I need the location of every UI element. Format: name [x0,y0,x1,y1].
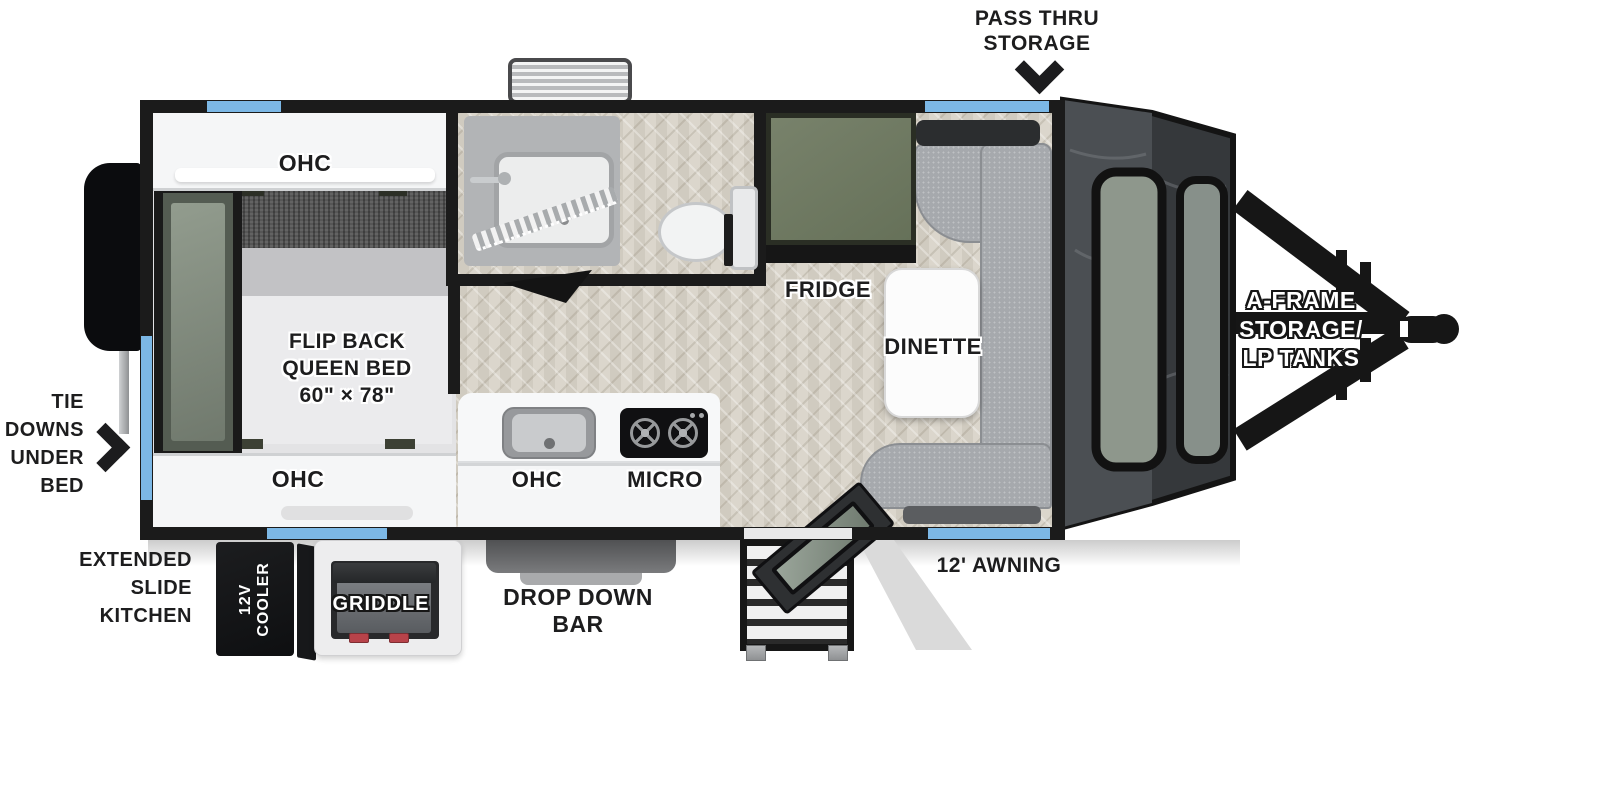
extended-slide-line1: EXTENDED [30,546,192,574]
drop-down-bar-label: DROP DOWN BAR [478,584,678,638]
griddle-label: GRIDDLE [318,592,444,616]
ohc-bed-top-label: OHC [230,150,380,178]
extended-slide-kitchen-label: EXTENDED SLIDE KITCHEN [30,546,192,630]
drop-down-bar [486,539,676,573]
extended-slide-line3: KITCHEN [30,602,192,630]
tie-downs-line4: BED [0,472,84,500]
pass-thru-line1: PASS THRU [927,6,1147,31]
step-foot [828,645,848,661]
bed-label: FLIP BACK QUEEN BED 60" × 78" [240,328,454,409]
tie-down-bar [119,350,129,434]
tie-downs-label: TIE DOWNS UNDER BED [0,388,84,500]
drop-down-bar-line2: BAR [478,611,678,638]
tie-downs-line3: UNDER [0,444,84,472]
pass-thru-strip [925,101,1049,112]
micro-label: MICRO [606,467,724,493]
bed-label-line3: 60" × 78" [240,382,454,409]
a-frame-storage-label: A-FRAME STORAGE/ LP TANKS [1212,286,1390,373]
entry-door-opening [744,528,852,539]
a-frame-line1: A-FRAME [1212,286,1390,315]
cooler-12v: 12V COOLER [216,542,294,656]
cooler-label: 12V COOLER [237,562,274,636]
bed-label-line1: FLIP BACK [240,328,454,355]
window-strip [267,528,387,539]
window-strip [141,336,152,500]
roof-vent [508,58,632,104]
cooler-label-line1: 12V [237,562,255,636]
tie-downs-line2: DOWNS [0,416,84,444]
extended-slide-line2: SLIDE [30,574,192,602]
awning-label: 12' AWNING [899,553,1099,578]
step-foot [746,645,766,661]
griddle-knob [349,633,369,643]
dinette-label: DINETTE [858,334,1008,360]
ohc-kitchen-label: OHC [482,467,592,493]
awning-strip [928,528,1050,539]
cooler-label-line2: COOLER [255,562,273,636]
tie-downs-line1: TIE [0,388,84,416]
griddle-lid [333,563,436,583]
floorplan-canvas: 12V COOLER [0,0,1600,812]
window-strip [207,101,281,112]
bed-label-line2: QUEEN BED [240,355,454,382]
fridge-label: FRIDGE [758,277,898,303]
a-frame-line2: STORAGE/ [1212,315,1390,344]
ohc-bed-bottom-label: OHC [223,466,373,494]
rear-storage-pod [84,163,141,351]
a-frame-line3: LP TANKS [1212,344,1390,373]
drop-down-bar-line1: DROP DOWN [478,584,678,611]
griddle-knob [389,633,409,643]
